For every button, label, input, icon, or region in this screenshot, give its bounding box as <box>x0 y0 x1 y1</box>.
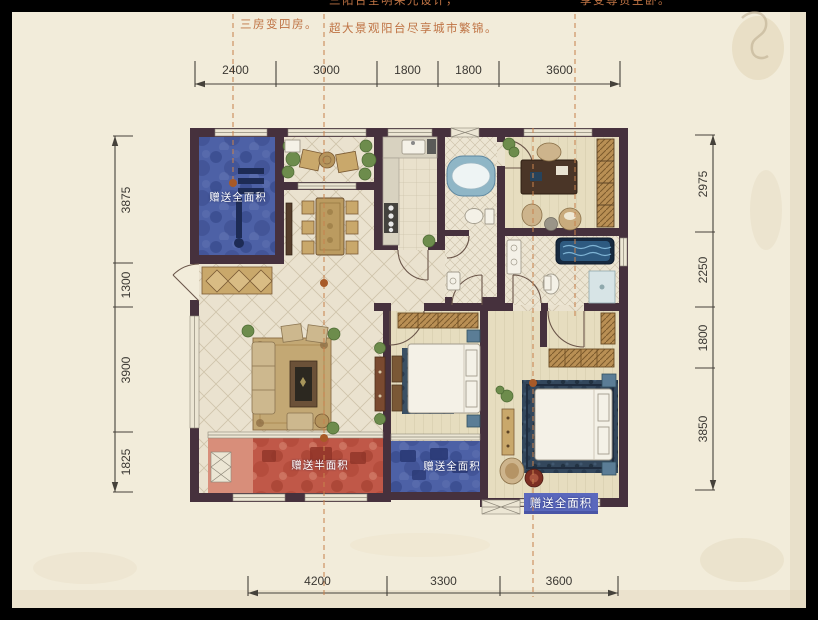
annotation-col2-line2: 超大景观阳台尽享城市繁锦。 <box>329 20 498 36</box>
window-symbol-bath <box>451 128 479 137</box>
dim-right-3: 1800 <box>696 324 710 351</box>
desk-chair <box>537 143 561 161</box>
window-symbol <box>211 452 231 482</box>
dim-right-2: 2250 <box>696 256 710 283</box>
dim-left-2: 1300 <box>119 272 133 299</box>
floor-plan-drawing <box>0 0 818 620</box>
floor-plan <box>173 128 628 514</box>
annotation-col1: 三房变四房。 <box>240 16 318 32</box>
dim-bottom-1: 4200 <box>304 574 331 588</box>
window-symbol-bay <box>482 500 520 514</box>
floor-plan-page: 三房变四房。 三阳台全明采光设计， 超大景观阳台尽享城市繁锦。 享受尊贵主卧。 … <box>0 0 818 620</box>
sofa <box>252 342 275 414</box>
dim-left-4: 1825 <box>119 449 133 476</box>
gift-label-top-left: 赠送全面积 <box>209 190 267 205</box>
entry-furniture <box>202 267 272 294</box>
dim-top-3: 1800 <box>394 63 421 77</box>
desk <box>521 160 577 194</box>
gift-label-bottom-middle: 赠送全面积 <box>423 459 481 474</box>
dim-top-5: 3600 <box>546 63 573 77</box>
dim-left-3: 3900 <box>119 356 133 383</box>
sideboard <box>375 357 385 411</box>
annotation-col2-line1: 三阳台全明采光设计， <box>329 0 459 8</box>
gift-label-bottom-right: 赠送全面积 <box>530 495 593 511</box>
dim-bottom-3: 3600 <box>546 574 573 588</box>
toilet <box>465 209 483 224</box>
dim-right-4: 3850 <box>696 416 710 443</box>
dim-top-1: 2400 <box>222 63 249 77</box>
dim-top-2: 3000 <box>313 63 340 77</box>
dim-right-1: 2975 <box>696 170 710 197</box>
annotation-col3: 享受尊贵主卧。 <box>580 0 671 8</box>
dim-left-1: 3875 <box>119 186 133 213</box>
dim-top-4: 1800 <box>455 63 482 77</box>
dim-bottom-2: 3300 <box>430 574 457 588</box>
closet <box>549 349 614 367</box>
gift-label-bottom-left: 赠送半面积 <box>291 458 349 473</box>
